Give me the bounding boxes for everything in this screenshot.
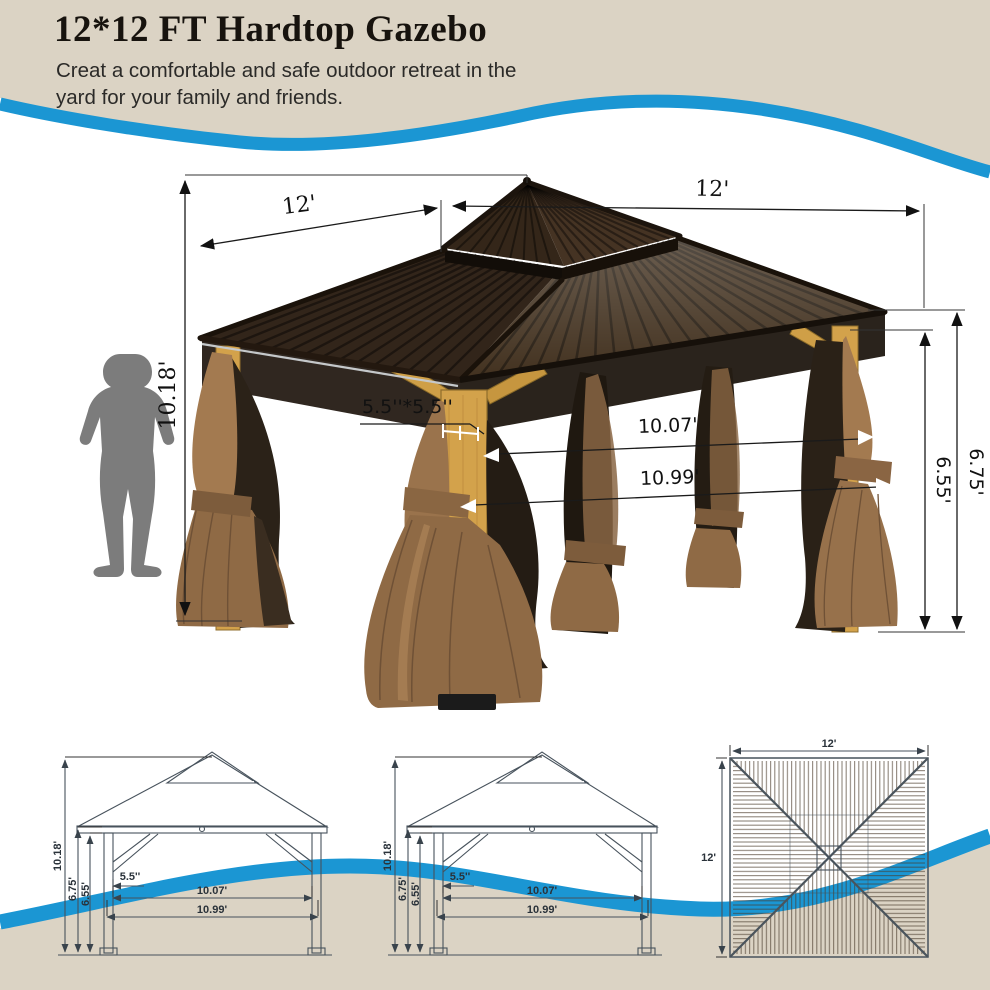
side-post-inner-label: 6.55'	[410, 882, 422, 906]
front-post-base	[438, 694, 496, 710]
dim-total-height-label: 10.18'	[156, 360, 181, 429]
topview-width-label: 12'	[822, 738, 837, 750]
gazebo-illustration	[80, 177, 898, 710]
dim-post-section-label: 5.5''*5.5''	[362, 396, 453, 418]
dim-post-height-inner-label: 6.55'	[932, 456, 954, 504]
front-span-inner-label: 10.07'	[197, 885, 228, 897]
dim-span-inner-label: 10.07'	[638, 414, 698, 438]
front-span-outer-label: 10.99'	[197, 904, 228, 916]
side-span-inner-label: 10.07'	[527, 885, 558, 897]
dim-post-height-outer-label: 6.75'	[965, 448, 987, 496]
side-post-width-label: 5.5''	[450, 871, 471, 883]
page-subtitle: Creat a comfortable and safe outdoor ret…	[56, 58, 561, 111]
front-post-outer-label: 6.75'	[67, 877, 79, 901]
dim-roof-right-label: 12'	[695, 177, 730, 203]
top-view-drawing: 12' 12'	[701, 738, 928, 957]
topview-depth-label: 12'	[701, 852, 716, 864]
front-post-inner-label2: 6.55'	[80, 882, 92, 906]
page-title: 12*12 FT Hardtop Gazebo	[54, 8, 561, 51]
side-height-label: 10.18'	[382, 841, 394, 872]
header: 12*12 FT Hardtop Gazebo Creat a comforta…	[54, 8, 561, 111]
gazebo-product-infographic: 10.18' 12' 12' 5.5''*5.5'' 10.07' 10.99'	[0, 0, 990, 990]
dim-roof-left-label: 12'	[281, 191, 318, 220]
side-span-outer-label: 10.99'	[527, 904, 558, 916]
side-post-outer-label: 6.75'	[397, 877, 409, 901]
front-height-label: 10.18'	[52, 841, 64, 872]
front-post-width-label: 5.5''	[120, 871, 141, 883]
dim-span-outer-label: 10.99'	[640, 466, 700, 490]
